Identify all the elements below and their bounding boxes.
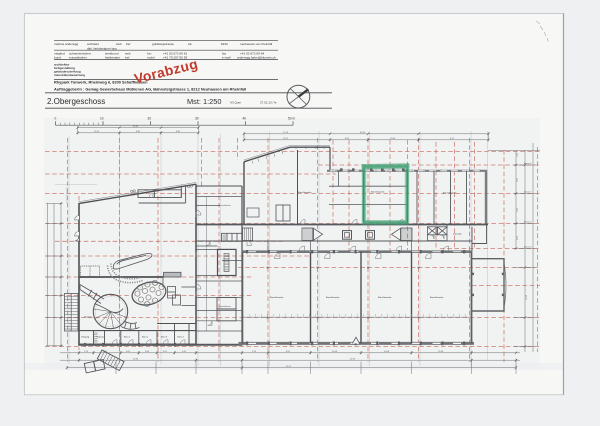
svg-text:45.98: 45.98 xyxy=(350,358,356,360)
svg-text:12.06: 12.06 xyxy=(526,294,528,300)
svg-text:e-mail: e-mail xyxy=(222,56,231,60)
svg-text:10: 10 xyxy=(100,117,104,121)
svg-text:goldbergstrasse: goldbergstrasse xyxy=(152,42,174,46)
svg-text:50 m: 50 m xyxy=(288,117,295,121)
svg-text:Mst: 1:250: Mst: 1:250 xyxy=(187,97,222,106)
svg-text:2.Obergeschoss: 2.Obergeschoss xyxy=(47,97,105,106)
svg-text:10.08: 10.08 xyxy=(390,138,396,140)
svg-text:17.43: 17.43 xyxy=(283,132,289,134)
svg-text:Kernaufbauten: Kernaufbauten xyxy=(219,204,231,207)
svg-text:Depositär: Depositär xyxy=(453,232,462,235)
svg-text:immobilienbewertung: immobilienbewertung xyxy=(54,73,85,77)
svg-text:dipl. farbdesigner iacc: dipl. farbdesigner iacc xyxy=(87,46,118,50)
svg-text:Kernaufbauten: Kernaufbauten xyxy=(219,305,231,308)
svg-text:Vorplatz: Vorplatz xyxy=(84,316,92,319)
svg-text:Achse 5: Achse 5 xyxy=(524,162,532,165)
svg-text:Achse D: Achse D xyxy=(524,246,532,249)
svg-text:bund: bund xyxy=(54,56,61,60)
svg-text:Büro/Gewerbe: Büro/Gewerbe xyxy=(298,191,312,194)
svg-text:A3 Quer: A3 Quer xyxy=(230,100,241,104)
svg-text:mobil: mobil xyxy=(147,56,155,60)
svg-text:Büro/Gewerbe: Büro/Gewerbe xyxy=(430,296,444,299)
svg-text:41.69: 41.69 xyxy=(133,126,139,128)
svg-text:Büro 2: Büro 2 xyxy=(142,335,149,338)
svg-text:Büro/Gewerbe: Büro/Gewerbe xyxy=(371,191,385,194)
svg-text:neuhausen am rheinfall: neuhausen am rheinfall xyxy=(240,42,272,46)
svg-text:europäischer: europäischer xyxy=(69,56,87,60)
svg-text:Büro/Gewerbe: Büro/Gewerbe xyxy=(378,296,392,299)
svg-text:Büro/Gewerbe: Büro/Gewerbe xyxy=(326,296,340,299)
svg-text:bef: bef xyxy=(125,56,129,60)
svg-text:Büro/Gewerbe: Büro/Gewerbe xyxy=(443,192,457,195)
svg-text:Achse 9: Achse 9 xyxy=(524,221,532,224)
svg-text:40: 40 xyxy=(243,117,247,121)
svg-text:Auftraggeberin : Gemag Gewerbe: Auftraggeberin : Gemag Gewerbehaus Mühle… xyxy=(54,86,246,91)
svg-text:Vorplatz: Vorplatz xyxy=(97,335,105,338)
svg-text:Büro 3: Büro 3 xyxy=(161,335,168,338)
svg-text:Büro/Gewerbe: Büro/Gewerbe xyxy=(270,296,284,299)
svg-text:Achse 7: Achse 7 xyxy=(524,191,532,194)
svg-text:Büro 4: Büro 4 xyxy=(178,335,185,338)
svg-text:markus anderegg: markus anderegg xyxy=(54,42,78,46)
svg-text:27.02.13 / fe: 27.02.13 / fe xyxy=(260,100,277,104)
svg-text:anderegg.farbe@bluewin.ch: anderegg.farbe@bluewin.ch xyxy=(237,56,276,60)
svg-text:2a: 2a xyxy=(188,42,192,46)
svg-text:bef: bef xyxy=(126,42,130,46)
svg-text:farbberater: farbberater xyxy=(105,56,120,60)
svg-text:40.32: 40.32 xyxy=(360,132,366,134)
svg-text:8212: 8212 xyxy=(221,42,228,46)
svg-text:47.41: 47.41 xyxy=(286,366,292,368)
svg-text:10.08: 10.08 xyxy=(384,351,390,353)
svg-text:20: 20 xyxy=(148,117,152,121)
svg-text:Büro 1: Büro 1 xyxy=(124,335,131,338)
svg-text:Eingang: Eingang xyxy=(82,336,90,338)
svg-text:10.08: 10.08 xyxy=(332,351,338,353)
svg-text:0: 0 xyxy=(55,117,57,121)
svg-text:23.38: 23.38 xyxy=(133,358,139,360)
svg-text:12.08: 12.08 xyxy=(438,351,444,353)
svg-text:30: 30 xyxy=(195,117,199,121)
